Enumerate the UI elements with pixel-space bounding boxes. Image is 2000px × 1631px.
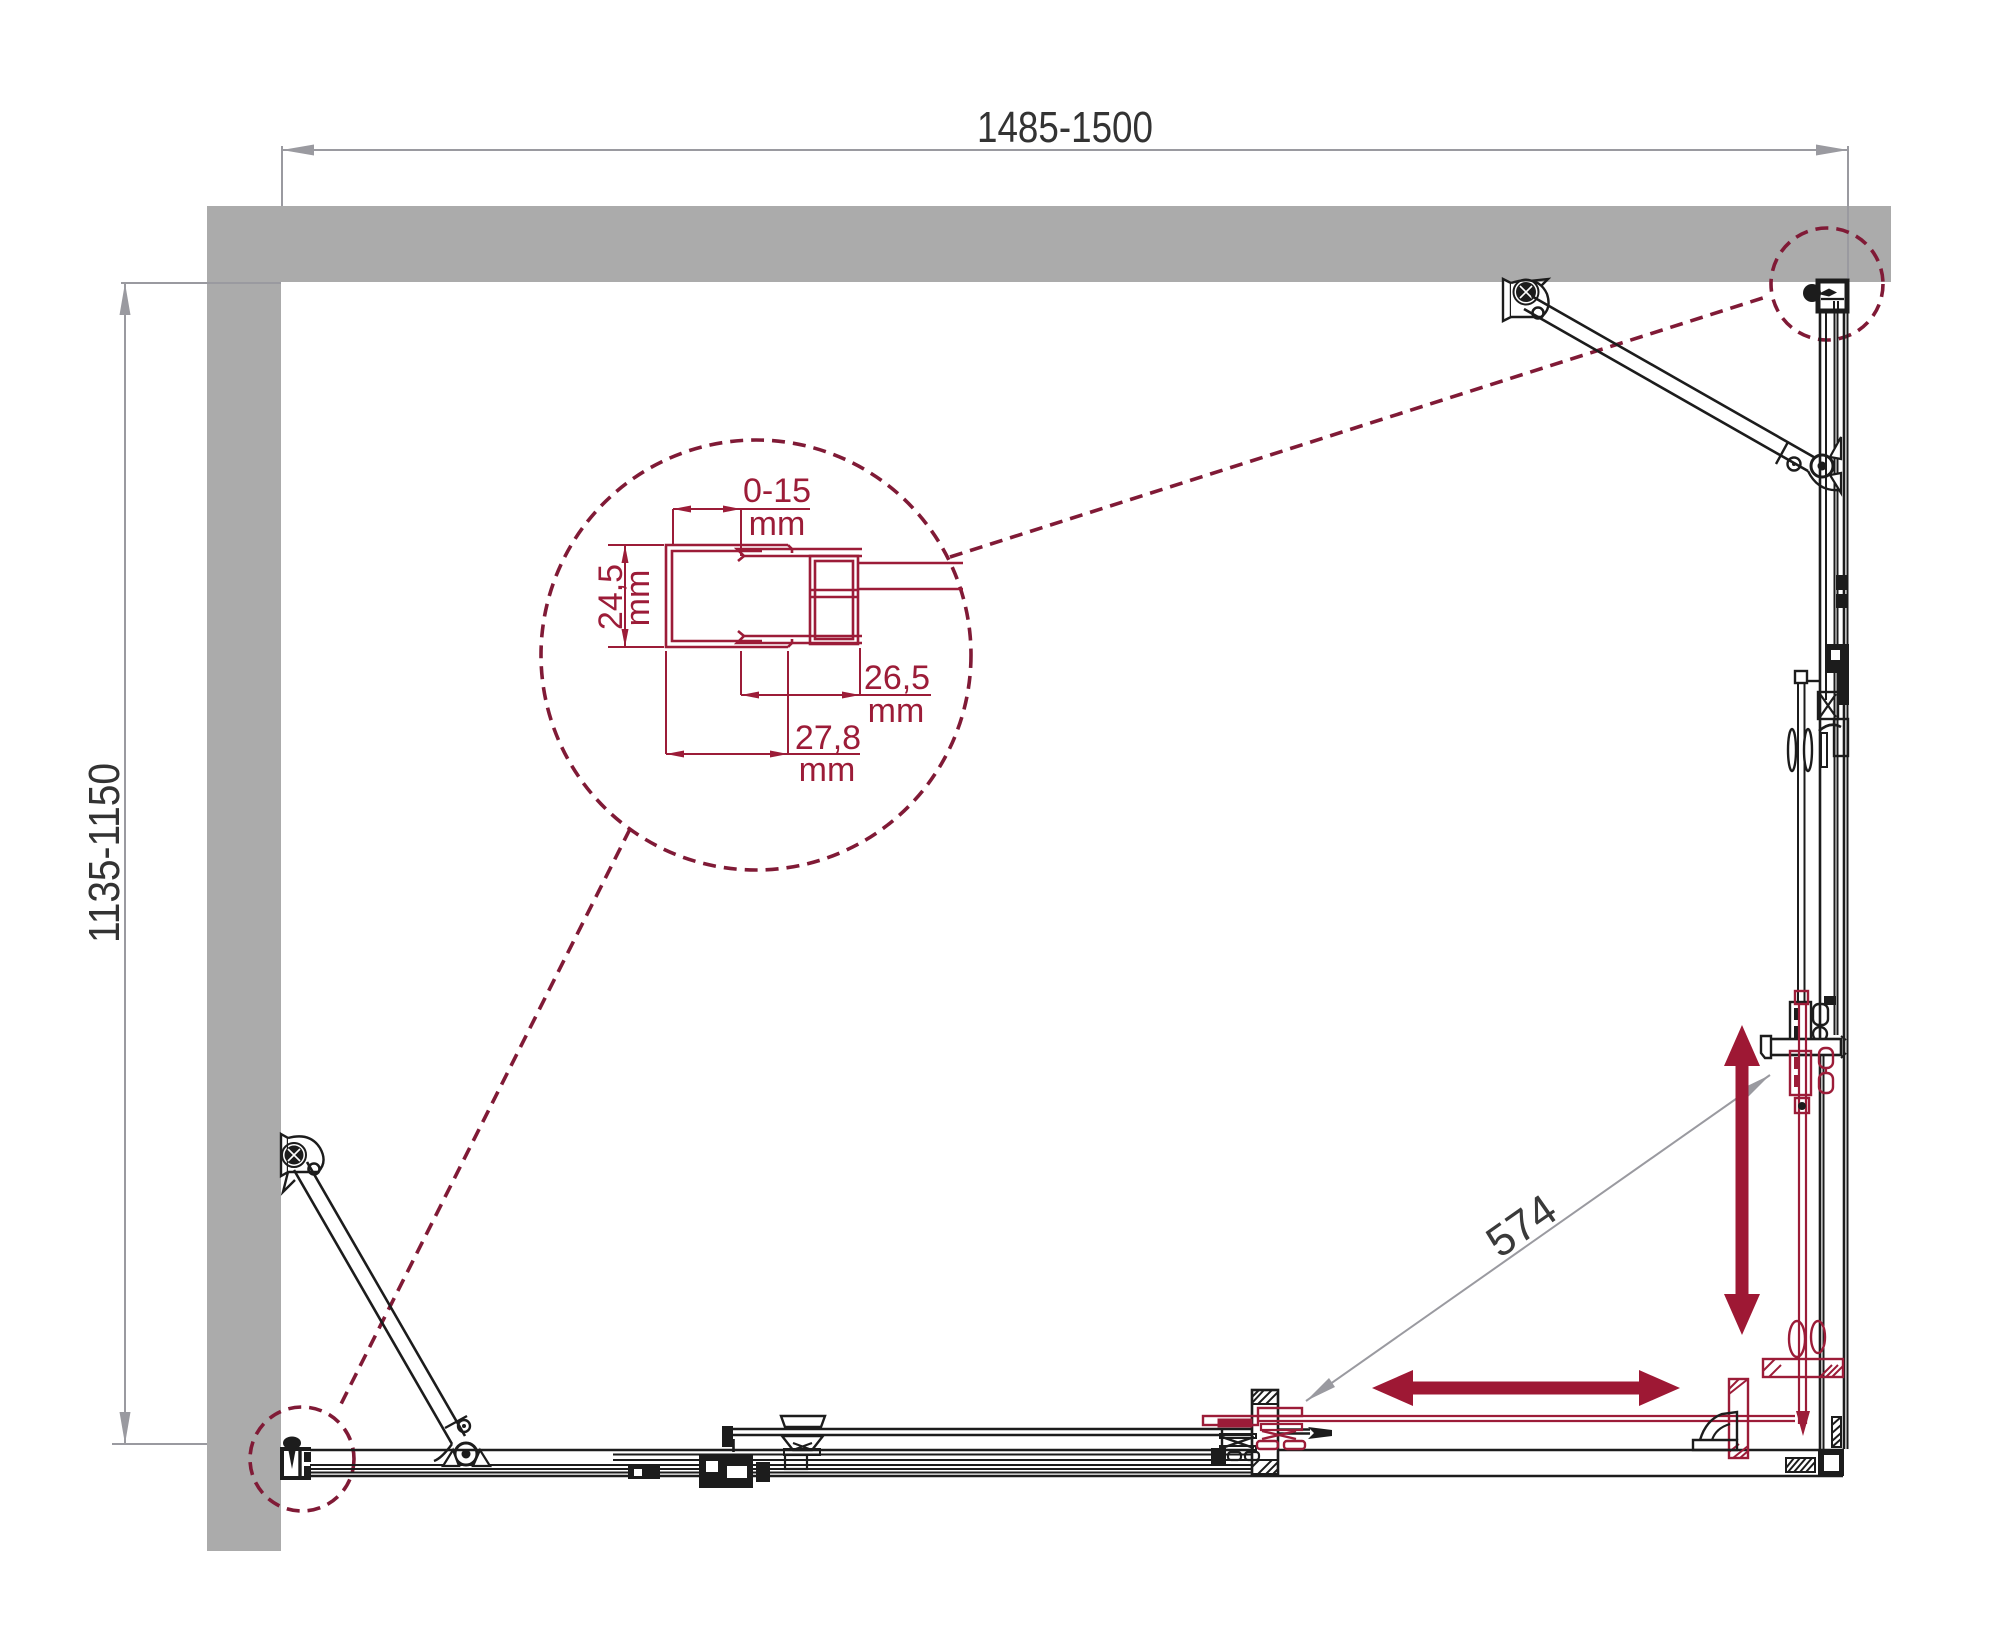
svg-text:1485-1500: 1485-1500 bbox=[977, 103, 1153, 152]
svg-text:1135-1150: 1135-1150 bbox=[80, 763, 129, 943]
svg-text:mm: mm bbox=[749, 505, 806, 543]
svg-text:mm: mm bbox=[868, 692, 925, 730]
svg-text:mm: mm bbox=[799, 751, 856, 789]
svg-text:mm: mm bbox=[619, 570, 657, 627]
